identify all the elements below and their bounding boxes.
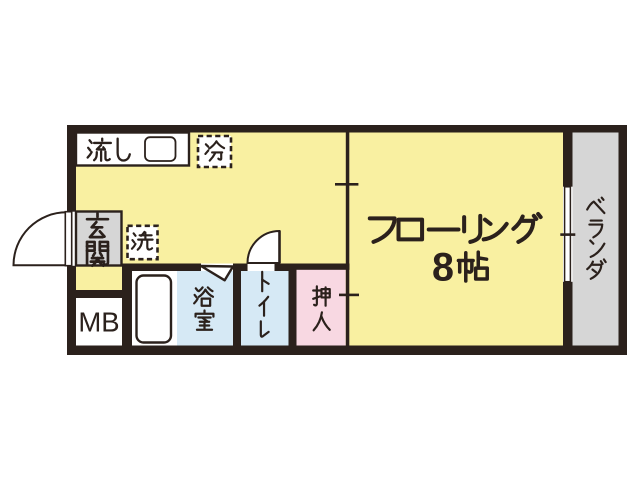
svg-text:MB: MB xyxy=(78,307,119,338)
svg-text:8: 8 xyxy=(432,246,454,290)
